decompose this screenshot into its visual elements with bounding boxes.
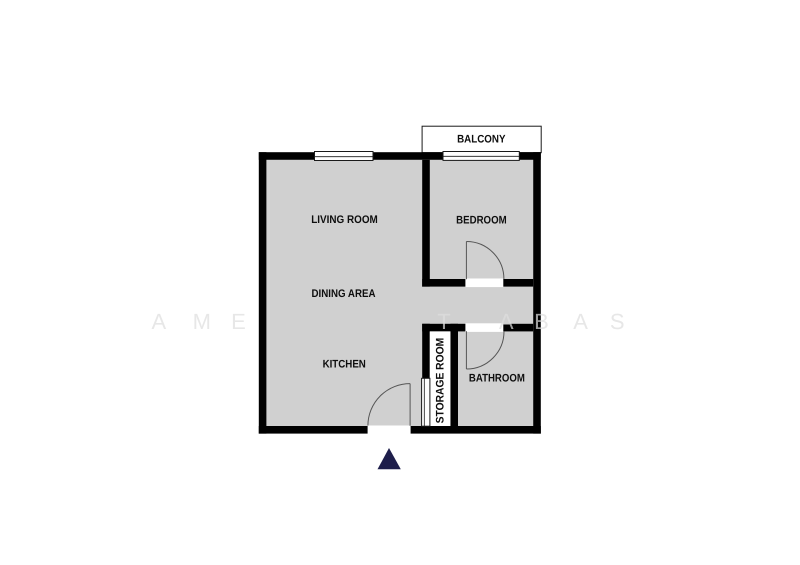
svg-text:BEDROOM: BEDROOM — [456, 214, 506, 226]
svg-text:DINING AREA: DINING AREA — [311, 288, 375, 300]
svg-text:E: E — [231, 309, 246, 334]
svg-text:T: T — [437, 309, 450, 334]
svg-text:A: A — [152, 309, 167, 334]
svg-text:KITCHEN: KITCHEN — [323, 358, 366, 370]
svg-text:BATHROOM: BATHROOM — [469, 372, 525, 384]
svg-text:BALCONY: BALCONY — [457, 133, 506, 145]
svg-text:LIVING ROOM: LIVING ROOM — [311, 214, 378, 226]
svg-text:STORAGE ROOM: STORAGE ROOM — [434, 338, 446, 424]
svg-text:M: M — [193, 309, 211, 334]
svg-text:B: B — [534, 309, 549, 334]
svg-text:S: S — [610, 309, 625, 334]
svg-text:A: A — [499, 309, 514, 334]
svg-text:A: A — [573, 309, 588, 334]
